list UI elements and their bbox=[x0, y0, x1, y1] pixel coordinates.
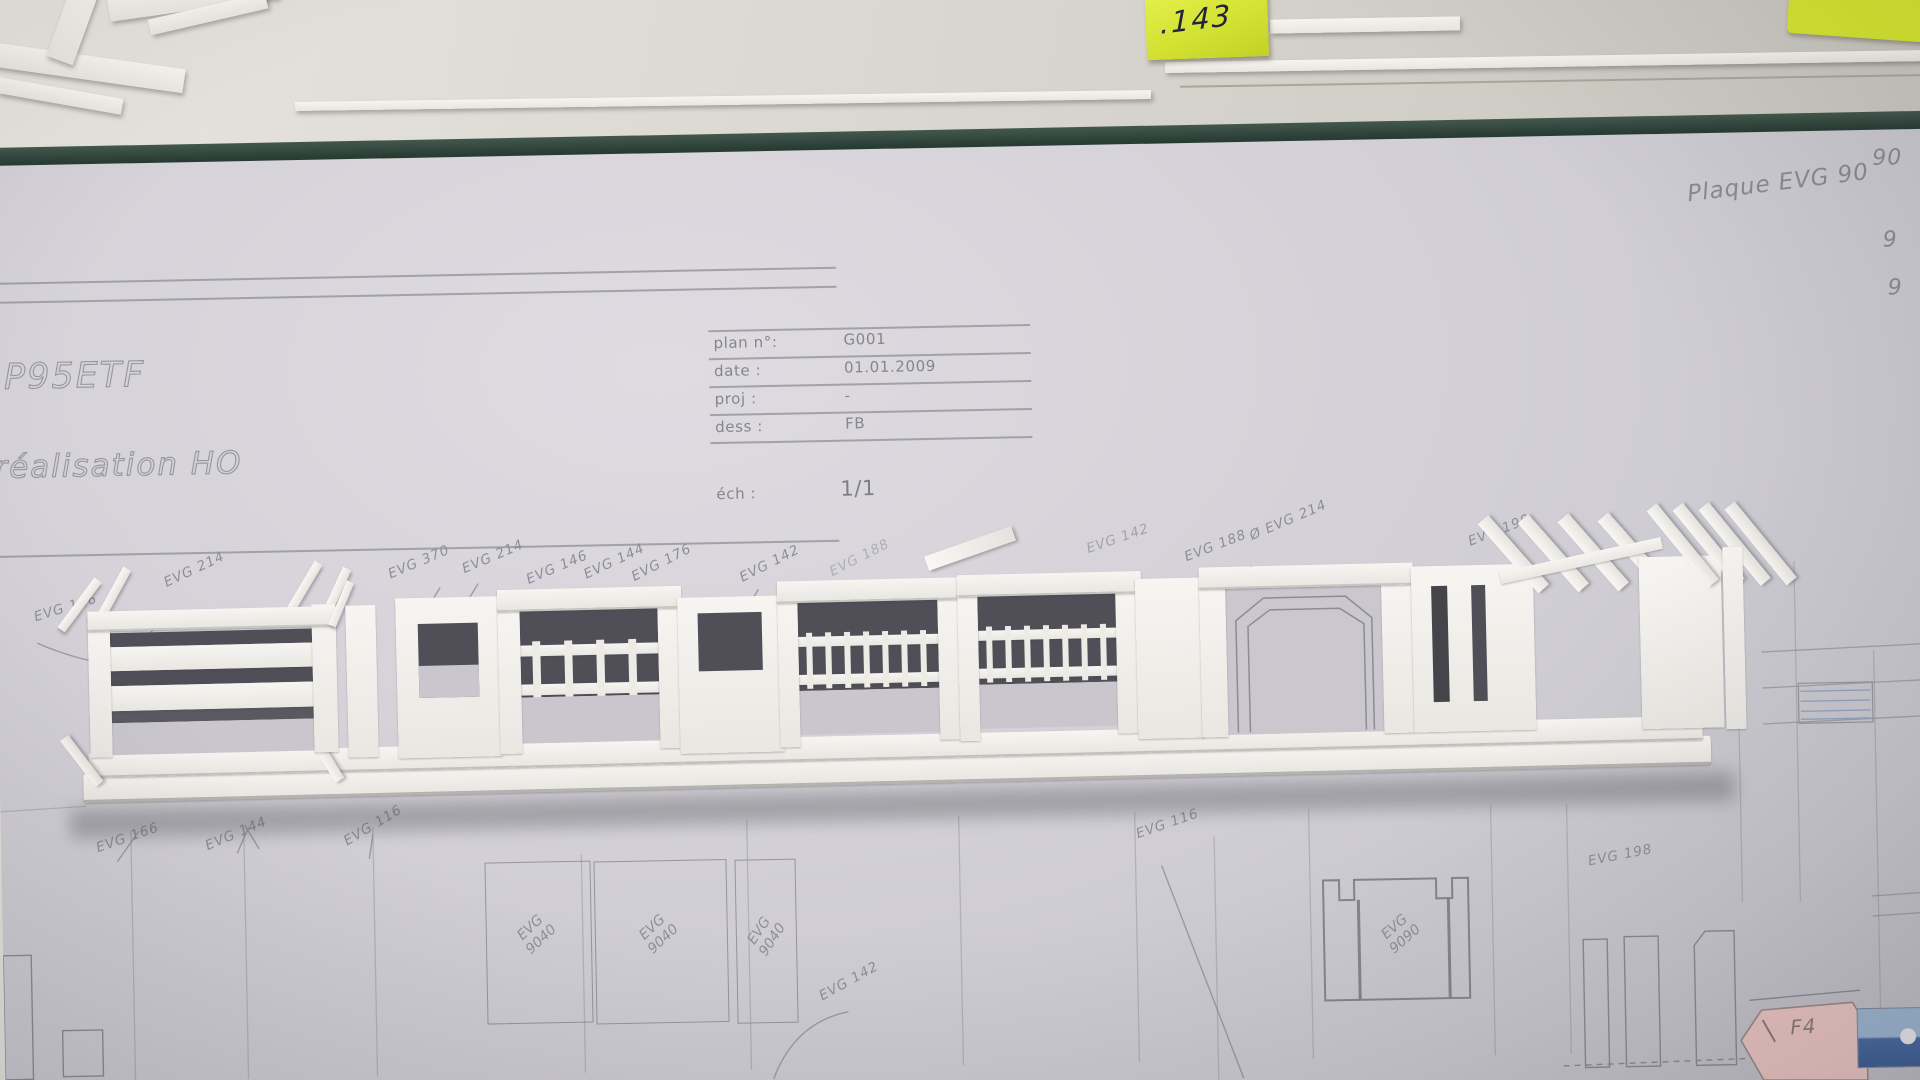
model-post bbox=[1199, 585, 1229, 738]
model-top-rail bbox=[777, 577, 961, 603]
model-railing-bar bbox=[844, 632, 851, 688]
model-railing-bar bbox=[628, 639, 637, 697]
model-opening bbox=[979, 682, 1120, 729]
model-railing-bar bbox=[863, 631, 870, 687]
model-post-block bbox=[1135, 578, 1205, 740]
plastic-strip-short bbox=[1270, 16, 1460, 33]
model-post bbox=[957, 593, 980, 741]
model-opening bbox=[521, 694, 660, 743]
model-opening bbox=[112, 718, 315, 755]
model-girder bbox=[78, 515, 1804, 825]
plastic-strip-long bbox=[1165, 50, 1920, 73]
sticky-pad-corner bbox=[1787, 0, 1920, 43]
model-railing-bar bbox=[1024, 626, 1031, 682]
model-slot bbox=[1431, 586, 1450, 702]
sticky-note: .143 bbox=[1145, 0, 1269, 60]
model-opening bbox=[799, 688, 940, 735]
model-top-rail bbox=[497, 586, 681, 612]
model-railing-bar bbox=[1062, 625, 1069, 681]
model-post bbox=[345, 605, 379, 758]
model-window bbox=[698, 612, 763, 671]
model-slot bbox=[1471, 585, 1488, 701]
blue-patch-hole bbox=[1900, 1028, 1916, 1044]
model-railing-bar bbox=[1005, 626, 1012, 682]
model-railing-bar bbox=[596, 640, 605, 698]
photo-scene: .143 plan n°: G001 date : 01.01.2009 pro… bbox=[0, 0, 1920, 1080]
model-post bbox=[87, 617, 112, 757]
model-railing-bar bbox=[1100, 624, 1107, 680]
model-post bbox=[777, 599, 800, 747]
portal-outline-drawing bbox=[1225, 583, 1384, 735]
bottom-right-part-outlines bbox=[3, 922, 1753, 1080]
model-railing-bar bbox=[986, 626, 993, 682]
model-window-lower bbox=[419, 665, 480, 698]
model-top-rail bbox=[957, 571, 1141, 597]
model-railing-bar bbox=[825, 632, 832, 688]
model-end-plate bbox=[1722, 547, 1746, 729]
model-railing-bar bbox=[1081, 624, 1088, 680]
model-post bbox=[1381, 575, 1415, 734]
plastic-offcut bbox=[0, 77, 123, 114]
model-railing-bar bbox=[1043, 625, 1050, 681]
model-railing-bar bbox=[920, 630, 927, 686]
model-railing-bar bbox=[532, 641, 541, 699]
model-railing-bar bbox=[806, 633, 813, 689]
sticky-note-text: .143 bbox=[1160, 0, 1232, 41]
desk-seam-line bbox=[1180, 74, 1920, 88]
model-railing-bar bbox=[901, 630, 908, 686]
model-louver-slat bbox=[110, 643, 313, 672]
model-railing-bar bbox=[882, 631, 889, 687]
blue-part-patch bbox=[1857, 1007, 1920, 1068]
plastic-strip-long bbox=[295, 90, 1151, 111]
model-louver-slat bbox=[111, 681, 314, 711]
model-opening-large bbox=[1225, 583, 1384, 735]
channel-profile-drawing bbox=[1323, 878, 1470, 1001]
model-railing-bar bbox=[564, 640, 573, 698]
model-post bbox=[497, 608, 522, 754]
f4-label: F4 bbox=[1789, 1014, 1817, 1040]
